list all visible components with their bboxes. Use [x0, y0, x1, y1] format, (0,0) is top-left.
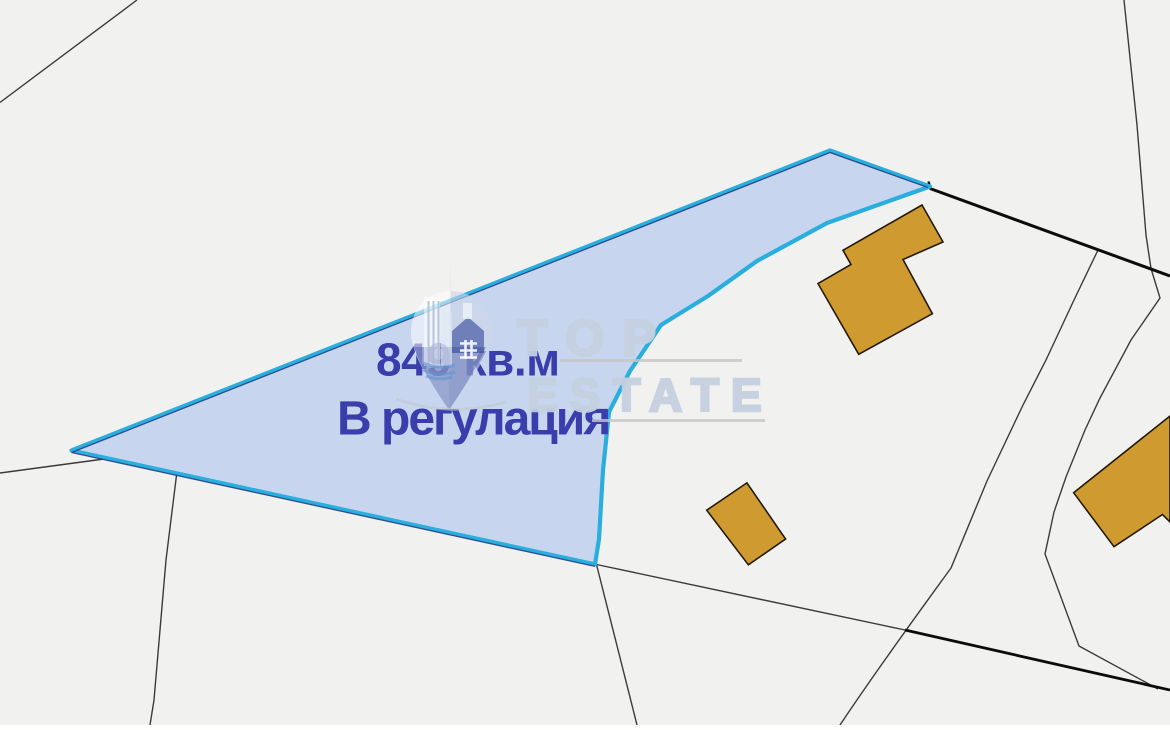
- svg-text:TOP: TOP: [517, 310, 674, 366]
- svg-text:ESTATE: ESTATE: [527, 369, 774, 421]
